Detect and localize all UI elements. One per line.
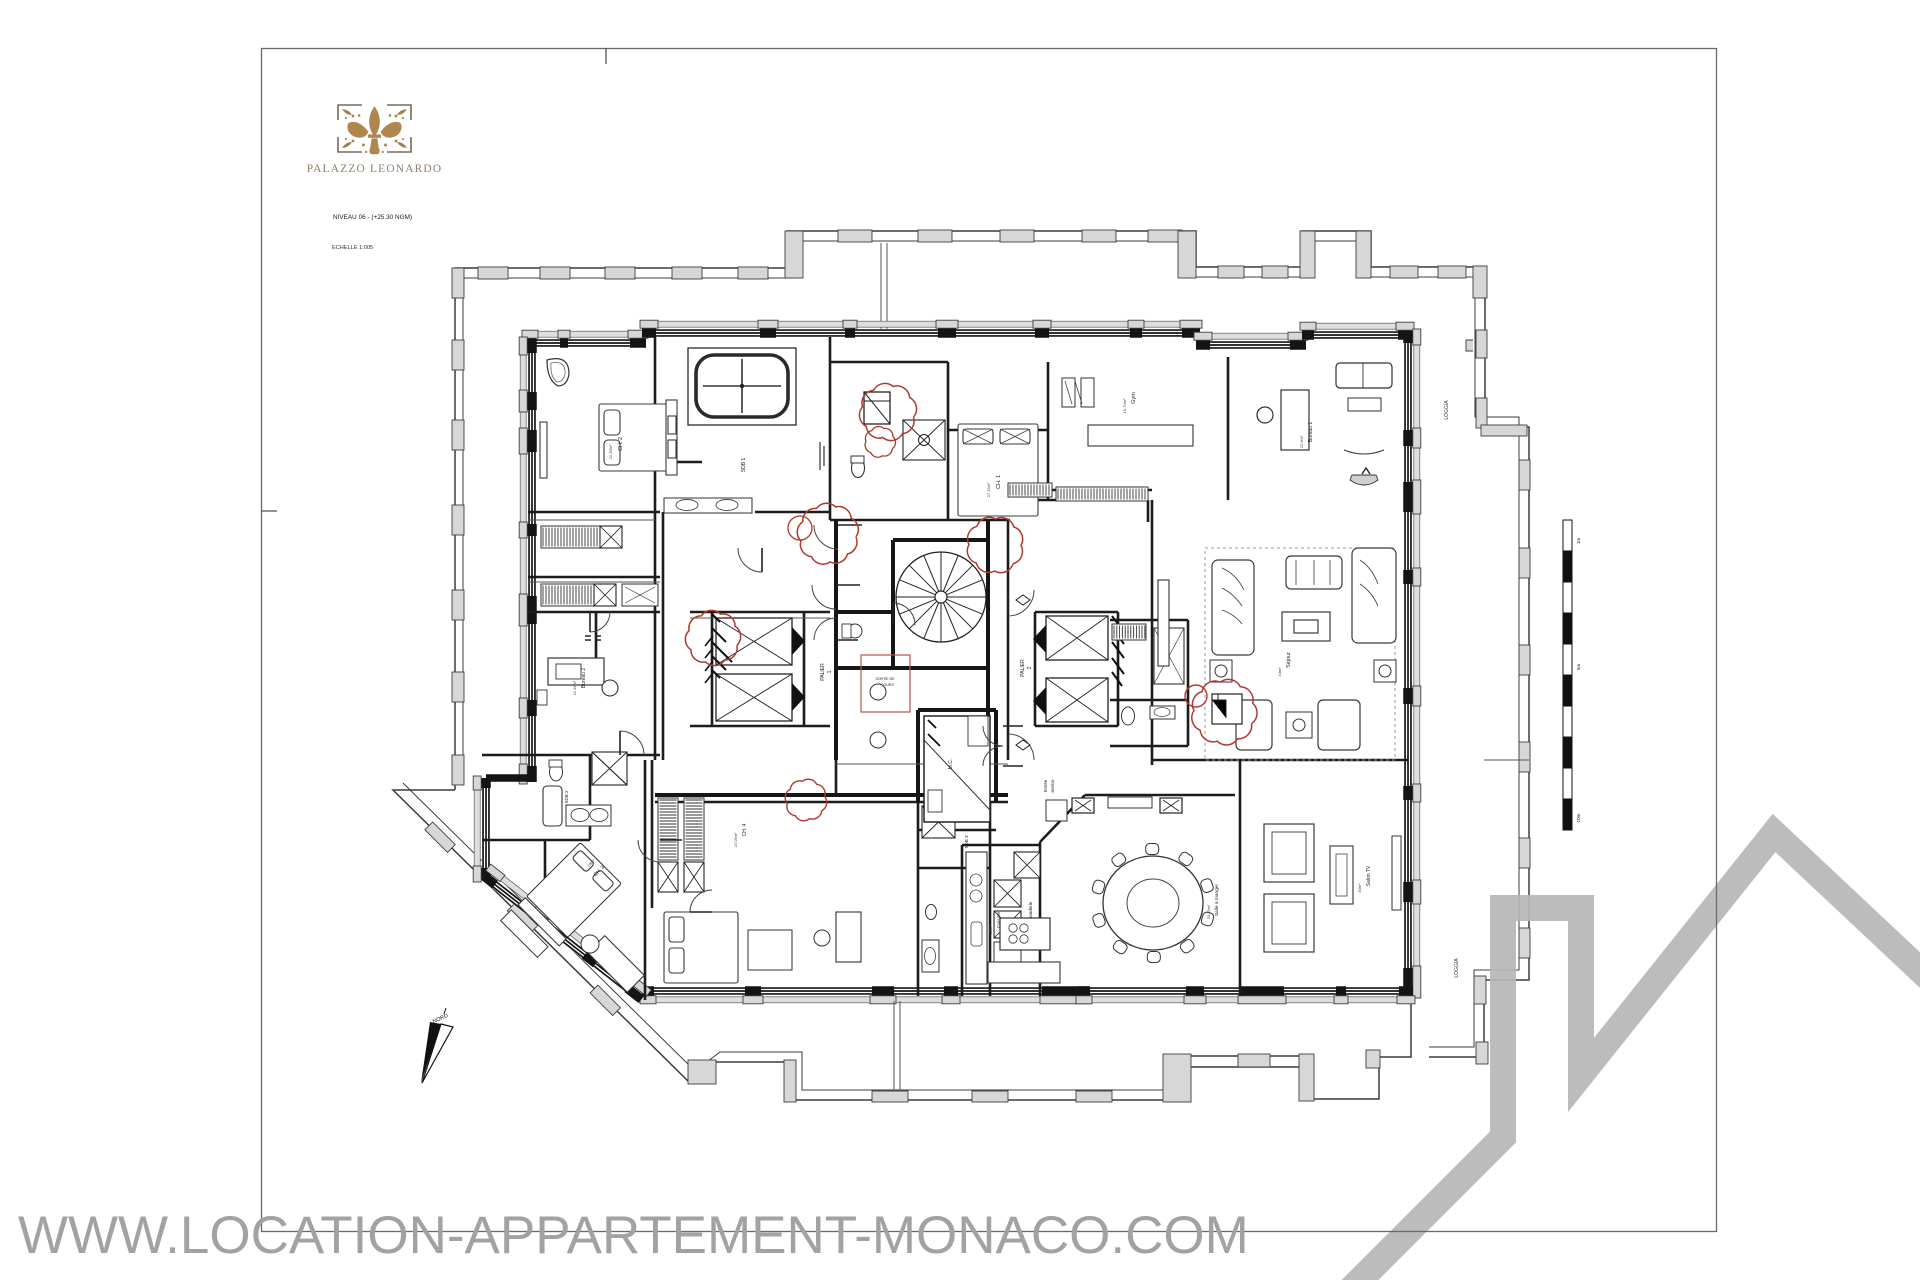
svg-text:15m²: 15m² [988,925,993,935]
svg-text:NIVEAU 06 - (+25.30 NGM): NIVEAU 06 - (+25.30 NGM) [333,214,412,221]
svg-text:Bureau 2: Bureau 2 [581,668,587,689]
svg-text:23.05m²: 23.05m² [733,832,738,847]
svg-text:CH. 4: CH. 4 [742,823,748,836]
svg-text:CH. 2: CH. 2 [618,437,624,451]
svg-text:Salon TV: Salon TV [1366,865,1372,886]
svg-text:LOGGIA: LOGGIA [1444,400,1450,420]
svg-text:2: 2 [1027,666,1033,669]
svg-text:22.9m²: 22.9m² [1299,435,1304,448]
svg-text:SDB 3: SDB 3 [964,835,969,849]
svg-text:Séjour: Séjour [1286,652,1292,668]
svg-text:Gym: Gym [1131,392,1137,404]
svg-text:ECHELLE 1:005: ECHELLE 1:005 [332,245,373,251]
svg-text:1m: 1m [1576,538,1581,545]
svg-text:Entrée: Entrée [1043,779,1048,792]
svg-text:SORTIE DE: SORTIE DE [875,677,895,681]
svg-text:5m: 5m [1576,664,1581,671]
svg-text:M.C.: M.C. [948,759,954,770]
svg-text:27.15m²: 27.15m² [986,482,991,497]
svg-text:SDB 2: SDB 2 [564,790,569,804]
svg-text:service: service [1050,779,1055,793]
svg-text:11.15m²: 11.15m² [572,680,577,695]
svg-text:21.35m²: 21.35m² [608,444,613,459]
svg-text:33.35m²: 33.35m² [1206,904,1211,919]
svg-text:Salle à manger: Salle à manger [1214,883,1220,916]
svg-text:Bureau 1: Bureau 1 [1308,422,1314,443]
svg-text:CH. 1: CH. 1 [996,475,1002,489]
svg-text:40m²: 40m² [1357,883,1362,893]
svg-text:1: 1 [827,670,833,673]
svg-text:SDB 1: SDB 1 [741,458,747,473]
svg-text:19.70m²: 19.70m² [1122,398,1127,413]
svg-text:44m²: 44m² [1277,667,1282,677]
svg-text:Cuisine: Cuisine [996,912,1002,928]
svg-text:10m: 10m [1576,813,1581,822]
svg-text:PALIER: PALIER [820,663,826,681]
svg-text:PALAZZO LEONARDO: PALAZZO LEONARDO [307,163,443,175]
svg-text:LOGGIA: LOGGIA [1454,958,1460,978]
svg-text:WWW.LOCATION-APPARTEMENT-MONAC: WWW.LOCATION-APPARTEMENT-MONACO.COM [18,1206,1249,1265]
svg-text:PALIER: PALIER [1020,659,1026,677]
